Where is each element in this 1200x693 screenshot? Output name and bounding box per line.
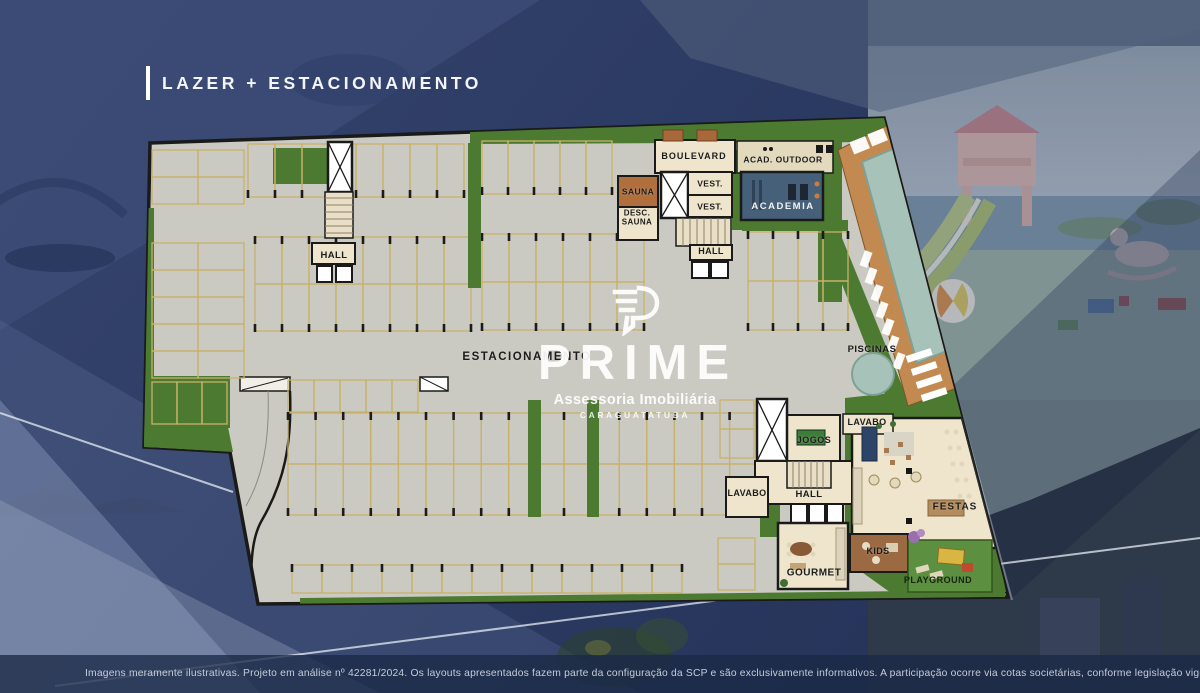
marketing-floorplan-page: BOULEVARDACAD. OUTDOORSAUNAVEST.VEST.DES…	[0, 0, 1200, 693]
title-accent-bar	[146, 66, 150, 100]
room-desc-sauna	[618, 207, 658, 240]
billiard-table-icon	[797, 430, 825, 445]
technical-box	[420, 377, 448, 391]
round-pool	[852, 353, 894, 395]
page-title: LAZER + ESTACIONAMENTO	[162, 73, 482, 94]
room-lavabo-left	[726, 477, 768, 517]
playground-area	[908, 540, 992, 592]
disclaimer-text: Imagens meramente ilustrativas. Projeto …	[85, 668, 1200, 679]
room-boulevard	[655, 140, 735, 173]
title-block: LAZER + ESTACIONAMENTO	[146, 66, 482, 100]
room-vest-1	[688, 172, 732, 195]
stairs-bottom	[787, 461, 831, 488]
floorplan-drawing	[0, 0, 1200, 693]
room-vest-2	[688, 195, 732, 217]
room-sauna	[618, 176, 658, 207]
room-kids	[850, 534, 908, 572]
hall-top-floor	[690, 245, 732, 260]
